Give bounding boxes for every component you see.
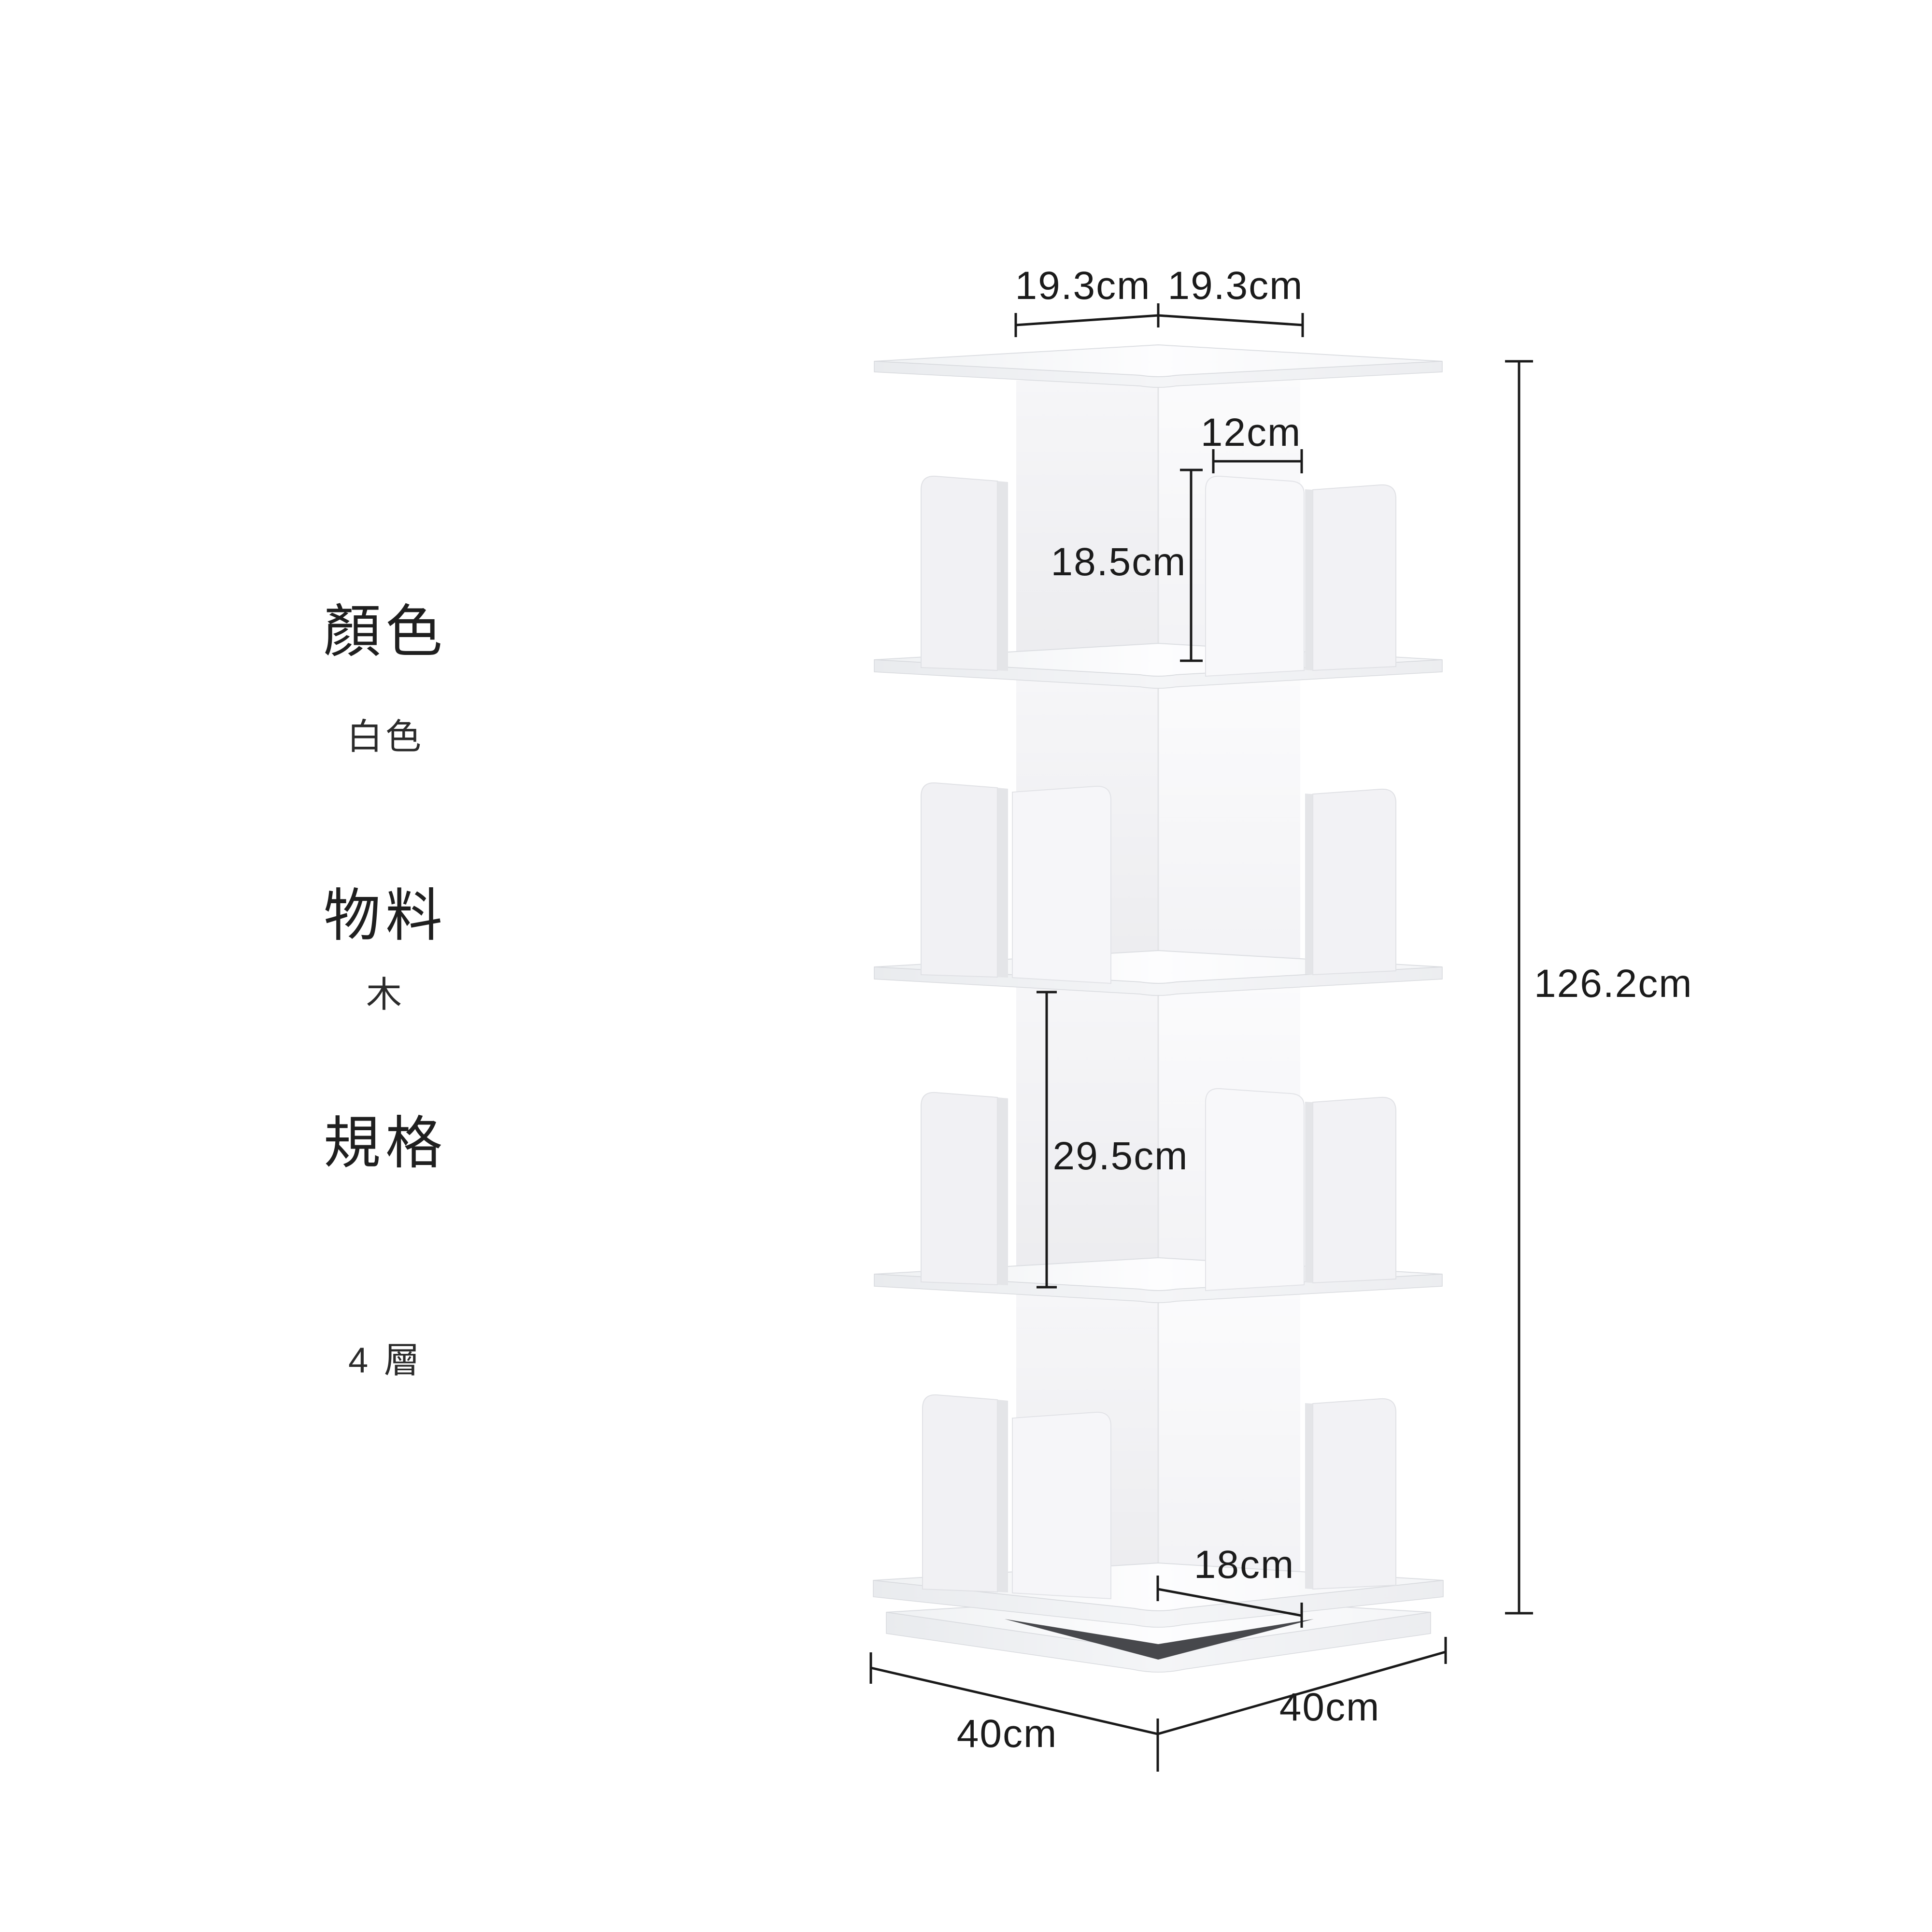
spec-size-label: 規格 <box>324 1097 447 1179</box>
dim-base-left-width: 40cm <box>957 1711 1058 1757</box>
dim-top-right-width: 19.3cm <box>1168 263 1304 309</box>
dim-total-height: 126.2cm <box>1534 961 1693 1007</box>
spec-sheet: 顏色 白色 物料 木 規格 4 層 19.3cm 19.3cm 12cm 18.… <box>0 0 1932 1932</box>
dim-tier3-inner-height: 29.5cm <box>1053 1134 1189 1179</box>
dim-base-inner-width: 18cm <box>1194 1542 1295 1588</box>
spec-material-value: 木 <box>366 966 405 1018</box>
spec-size-value: 4 層 <box>348 1332 423 1383</box>
spec-color-value: 白色 <box>347 708 424 760</box>
dim-divider-width: 12cm <box>1201 410 1302 455</box>
dim-line-total-height <box>1505 361 1533 1613</box>
spec-material-label: 物料 <box>324 869 447 952</box>
dim-base-right-width: 40cm <box>1279 1685 1380 1730</box>
dim-tier1-inner-height: 18.5cm <box>1051 540 1187 585</box>
top-plate <box>874 345 1442 387</box>
dim-top-left-width: 19.3cm <box>1015 263 1151 309</box>
spec-color-label: 顏色 <box>324 585 447 668</box>
